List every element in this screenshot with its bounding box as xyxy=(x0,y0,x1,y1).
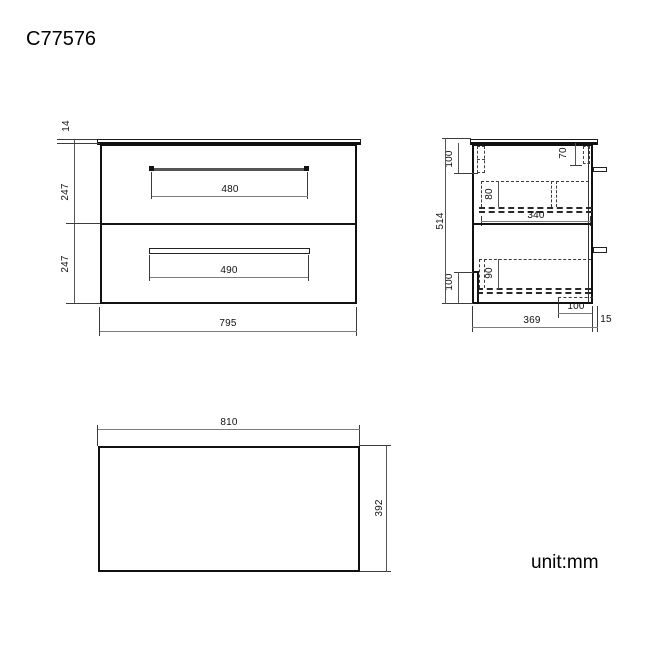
unit-label: unit:mm xyxy=(531,552,599,574)
dimension-line xyxy=(98,429,360,430)
dim-label-plan-width: 810 xyxy=(220,418,237,428)
plan-countertop-outline xyxy=(98,446,360,572)
dimension-line xyxy=(386,446,387,572)
dim-label-plan-depth: 392 xyxy=(375,499,385,516)
technical-drawing-canvas: C77576 480 490 795 14 xyxy=(0,0,650,650)
